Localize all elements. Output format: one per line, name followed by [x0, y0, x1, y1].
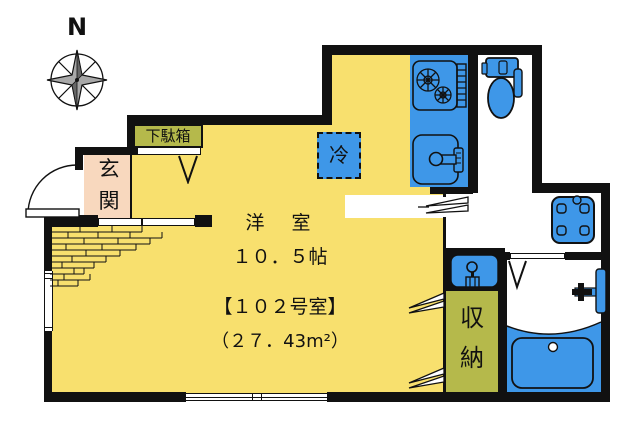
refrigerator-space: 冷 — [317, 132, 361, 179]
compass-star-icon — [38, 47, 116, 113]
wall — [75, 147, 137, 155]
wall — [44, 392, 186, 402]
window-frame-line — [45, 327, 52, 328]
shoe-cabinet: 下駄箱 — [133, 124, 203, 148]
window-frame-line — [186, 397, 327, 398]
storage-label-char: 収 — [446, 305, 498, 331]
north-label: N — [38, 14, 116, 40]
window-mullion — [261, 394, 262, 400]
bath-faucet-icon — [572, 269, 606, 313]
washbasin-icon — [445, 248, 505, 295]
bathtub-icon — [497, 250, 610, 395]
refrigerator-label: 冷 — [319, 144, 359, 166]
toilet-icon — [478, 54, 526, 122]
main-room-unit: 【１０２号室】 — [180, 297, 380, 318]
entrance-step-sill — [142, 218, 195, 226]
partition-wall — [130, 150, 132, 220]
wall — [430, 186, 473, 194]
shoe-cabinet-label: 下駄箱 — [135, 128, 201, 145]
storage-closet: 収 納 — [446, 291, 498, 392]
main-room-name: 洋 室 — [195, 213, 365, 234]
main-room-size: １０．５帖 — [195, 247, 365, 268]
main-room-area: （２７．43m²） — [180, 332, 380, 352]
storage-door-icon — [405, 291, 447, 316]
storage-label-char: 納 — [446, 345, 498, 371]
washroom-door-icon — [415, 194, 472, 216]
floor-plan: N 下駄箱 玄 関 — [0, 0, 640, 447]
window-mullion — [252, 394, 253, 400]
compass-rose: N — [38, 14, 116, 114]
wall — [532, 183, 610, 193]
stove-icon — [411, 58, 468, 114]
step-bricks-icon — [50, 226, 180, 292]
shoe-cabinet-door-icon — [176, 154, 200, 184]
wall — [468, 50, 478, 193]
wall — [532, 45, 542, 192]
entrance-label-char: 玄 — [95, 158, 123, 181]
entrance-door-icon — [20, 156, 84, 222]
wall — [322, 45, 332, 125]
entrance-step-sill — [98, 218, 142, 226]
window-bottom — [186, 393, 327, 401]
storage-door-icon — [405, 366, 447, 391]
entrance-label-char: 関 — [95, 190, 123, 213]
washing-machine-icon — [549, 194, 599, 248]
kitchen-sink-icon — [411, 131, 468, 187]
